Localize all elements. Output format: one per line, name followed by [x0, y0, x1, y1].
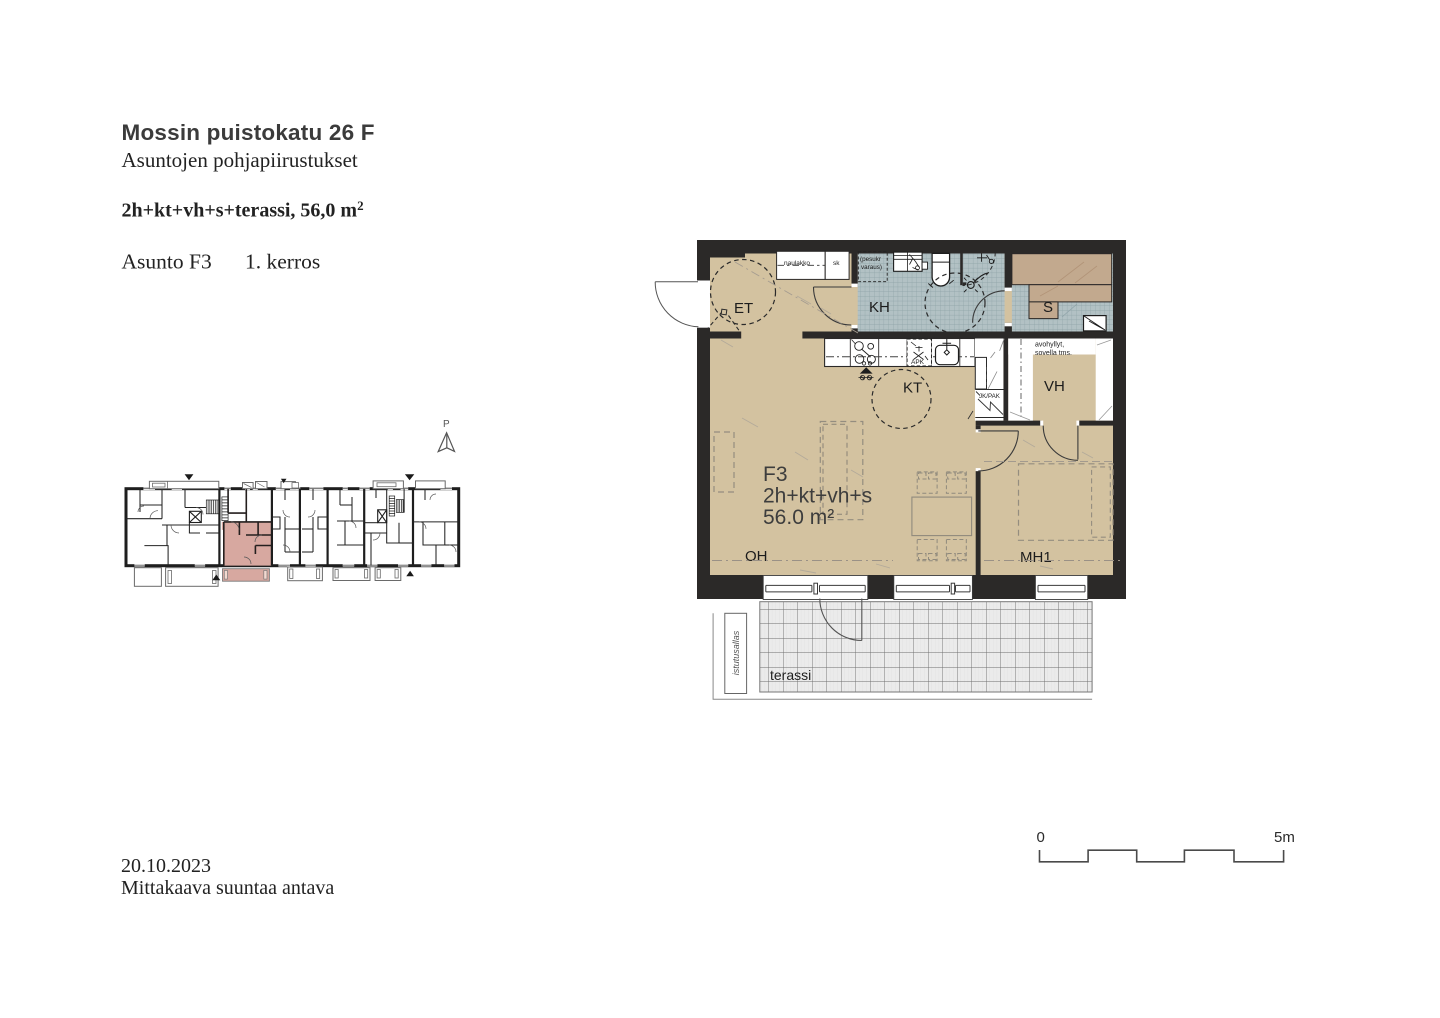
svg-text:sovella tms.: sovella tms.: [1035, 350, 1072, 357]
svg-text:20.10.2023: 20.10.2023: [121, 855, 211, 877]
svg-text:S: S: [1043, 299, 1053, 316]
svg-text:1. kerros: 1. kerros: [245, 250, 320, 274]
svg-text:istutusallas: istutusallas: [731, 630, 741, 675]
svg-text:2h+kt+vh+s+terassi, 56,0 m2: 2h+kt+vh+s+terassi, 56,0 m2: [122, 198, 364, 222]
svg-text:Mossin puistokatu 26 F: Mossin puistokatu 26 F: [122, 120, 375, 145]
svg-text:ET: ET: [734, 300, 753, 317]
svg-text:terassi: terassi: [770, 667, 811, 683]
svg-text:5m: 5m: [1274, 829, 1295, 846]
svg-text:VH: VH: [1044, 378, 1065, 395]
svg-text:KT: KT: [903, 380, 922, 397]
svg-text:JK/PAK: JK/PAK: [979, 393, 1001, 400]
svg-text:naulakko: naulakko: [784, 260, 810, 267]
svg-text:Asunto F3: Asunto F3: [122, 250, 212, 274]
svg-text:MH1: MH1: [1020, 549, 1052, 566]
svg-text:OH: OH: [745, 548, 768, 565]
svg-text:sk: sk: [833, 260, 840, 267]
svg-text:0: 0: [1037, 829, 1045, 846]
svg-text:KH: KH: [869, 299, 890, 316]
svg-text:Mittakaava suuntaa antava: Mittakaava suuntaa antava: [121, 877, 334, 899]
svg-text:varaus): varaus): [861, 264, 882, 271]
svg-text:F3: F3: [763, 463, 788, 486]
svg-text:56.0 m²: 56.0 m²: [763, 506, 834, 529]
svg-text:APK: APK: [911, 359, 925, 366]
svg-text:2h+kt+vh+s: 2h+kt+vh+s: [763, 485, 872, 508]
svg-text:Asuntojen pohjapiirustukset: Asuntojen pohjapiirustukset: [122, 148, 358, 172]
svg-text:avohyllyt,: avohyllyt,: [1035, 342, 1064, 349]
svg-text:(pesukr: (pesukr: [860, 256, 881, 263]
svg-text:P: P: [443, 419, 450, 430]
